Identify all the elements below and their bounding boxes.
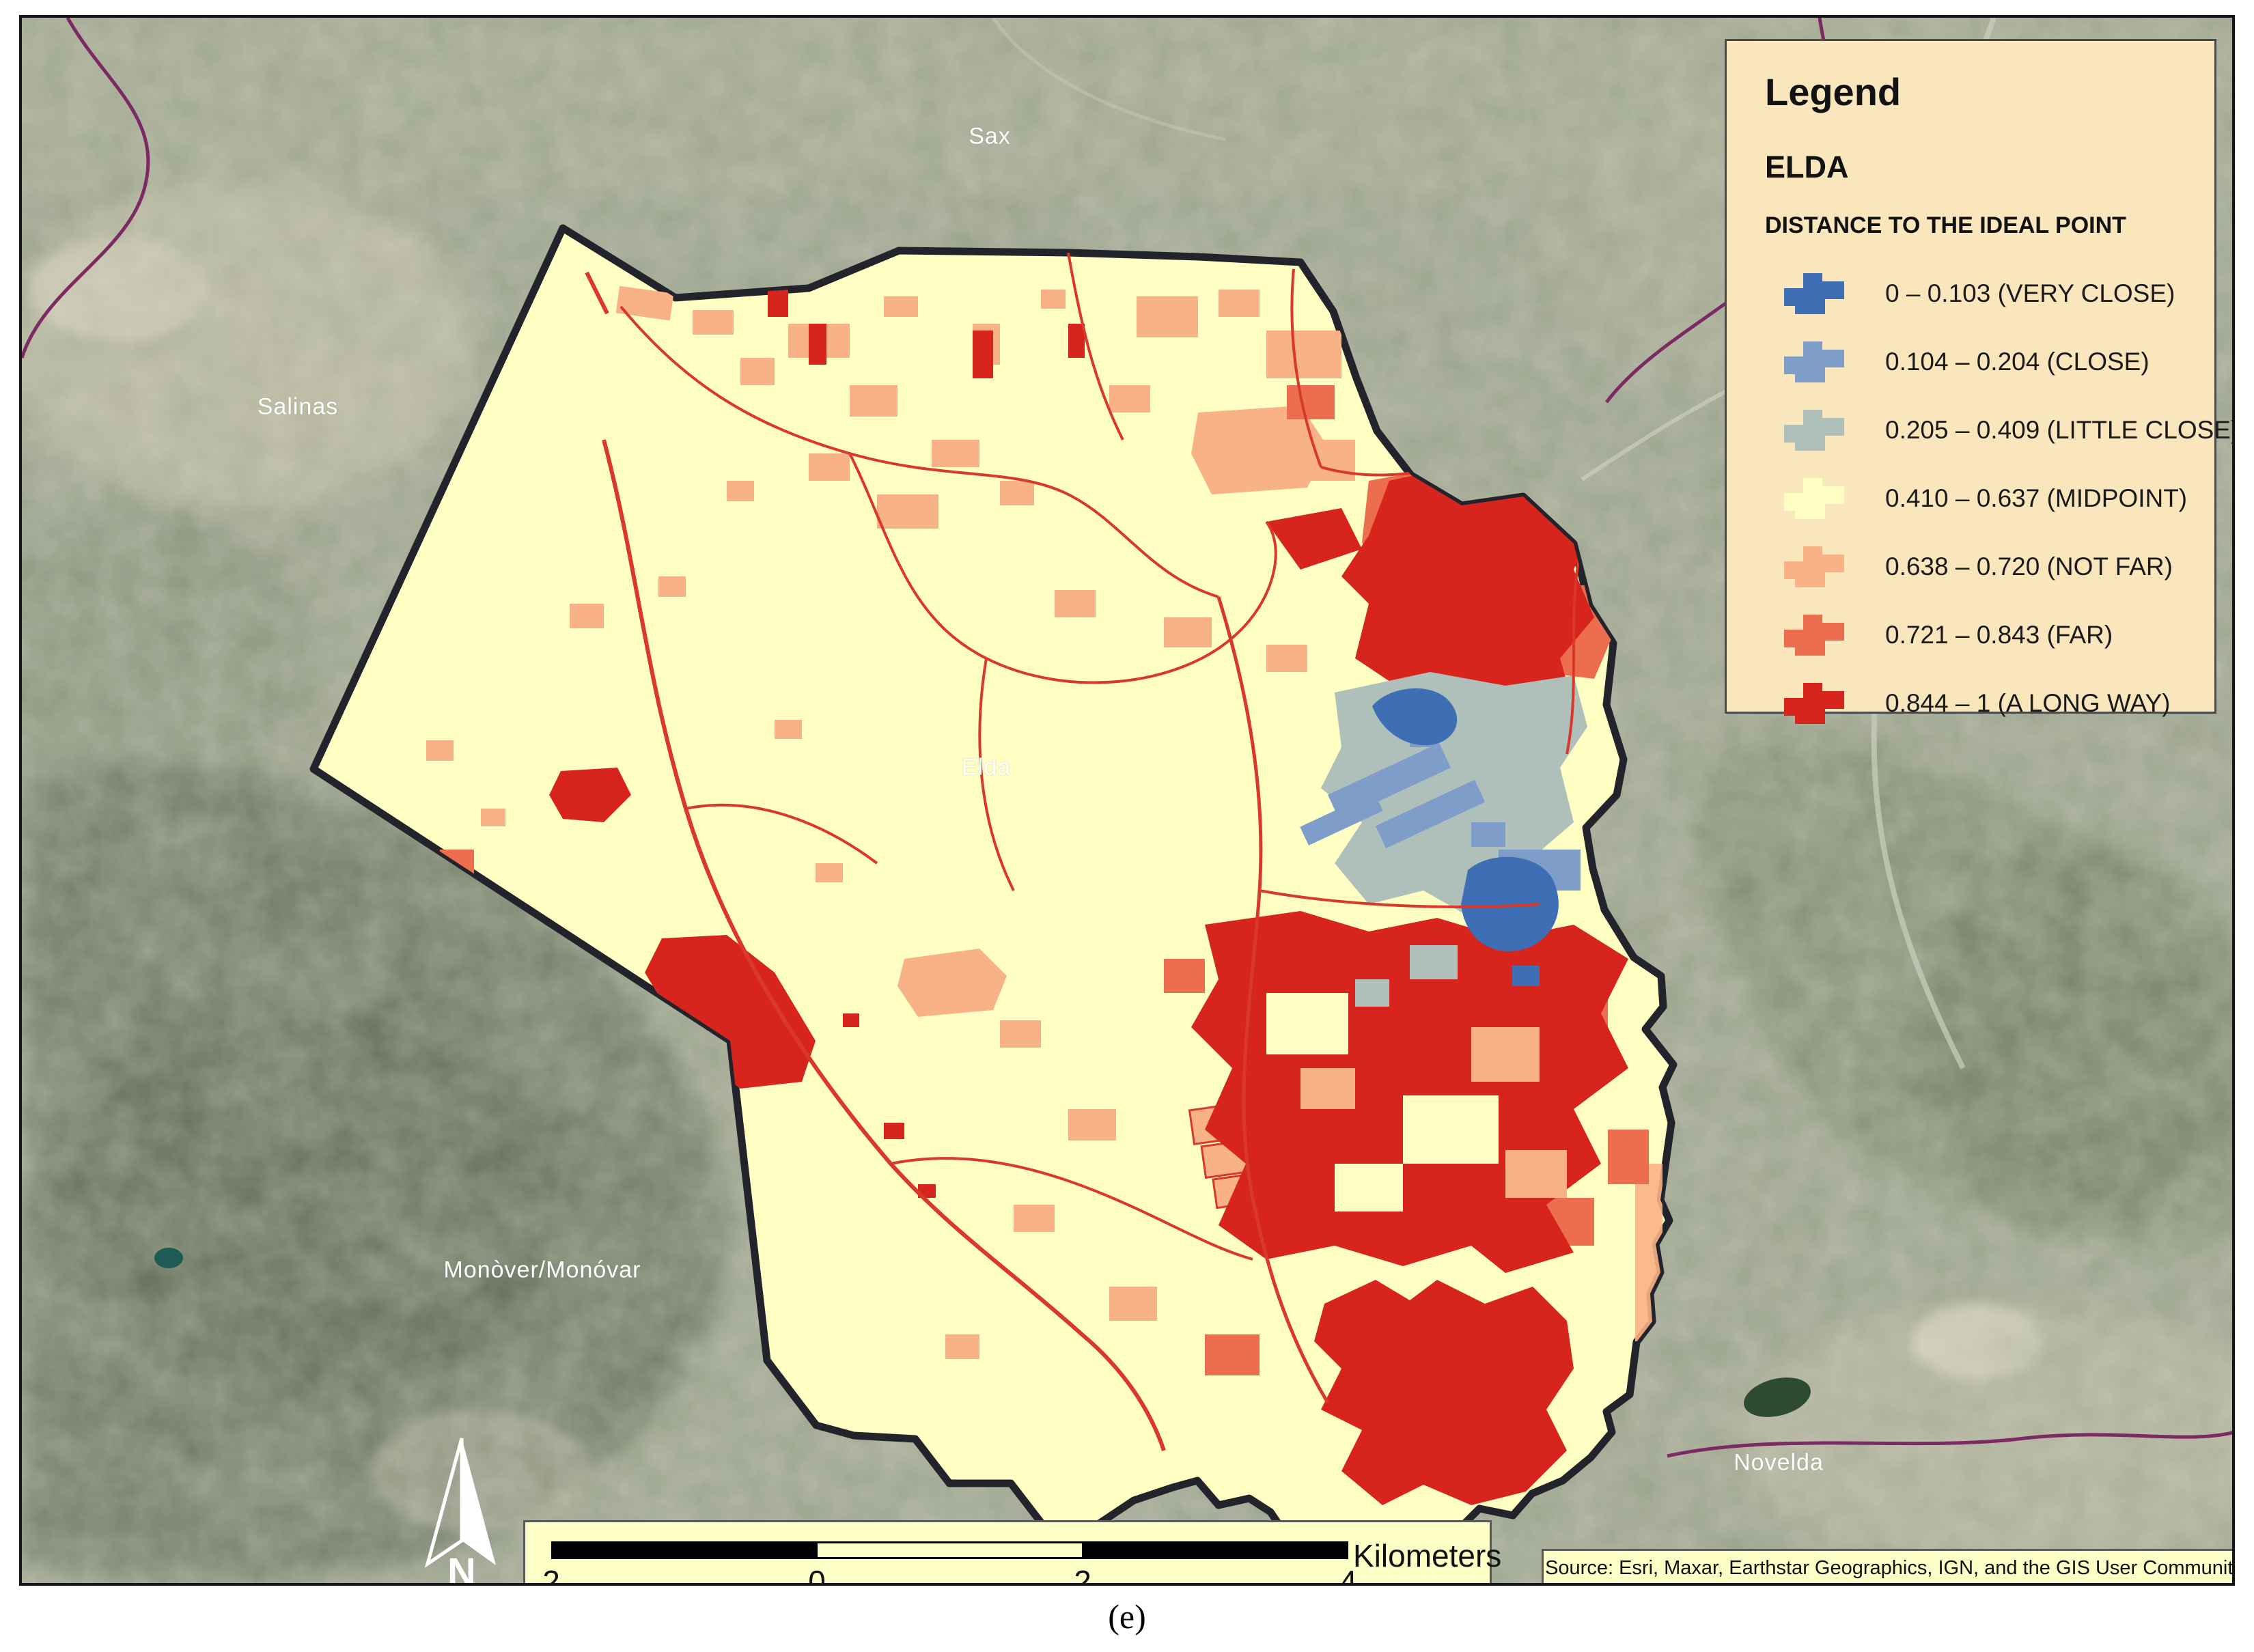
legend-panel: Legend ELDA DISTANCE TO THE IDEAL POINT … — [1725, 39, 2216, 714]
legend-swatch-icon — [1783, 545, 1846, 589]
legend-rows: 0 – 0.103 (VERY CLOSE)0.104 – 0.204 (CLO… — [1765, 260, 2194, 738]
legend-item: 0.410 – 0.637 (MIDPOINT) — [1765, 464, 2194, 533]
place-label: Novelda — [1734, 1450, 1824, 1476]
place-label: Elda — [962, 755, 1011, 781]
source-text: Source: Esri, Maxar, Earthstar Geographi… — [1545, 1557, 2235, 1580]
legend-item-label: 0.205 – 0.409 (LITTLE CLOSE) — [1885, 416, 2235, 445]
legend-item-label: 0.844 – 1 (A LONG WAY) — [1885, 689, 2170, 718]
legend-item-label: 0.410 – 0.637 (MIDPOINT) — [1885, 484, 2187, 513]
legend-swatch-icon — [1783, 340, 1846, 384]
place-label: Monòver/Monóvar — [443, 1257, 641, 1284]
legend-item-label: 0.721 – 0.843 (FAR) — [1885, 621, 2113, 649]
scale-unit-label: Kilometers — [1353, 1537, 1501, 1574]
scale-segment — [553, 1543, 818, 1557]
legend-swatch-icon — [1783, 272, 1846, 316]
scale-bar — [551, 1541, 1348, 1559]
scale-tick: 0 — [808, 1563, 826, 1586]
source-attribution: Source: Esri, Maxar, Earthstar Geographi… — [1542, 1549, 2235, 1586]
legend-item: 0 – 0.103 (VERY CLOSE) — [1765, 260, 2194, 328]
scale-segment — [818, 1543, 1082, 1557]
legend-item-label: 0.104 – 0.204 (CLOSE) — [1885, 348, 2149, 376]
legend-swatch-icon — [1783, 613, 1846, 657]
legend-item: 0.721 – 0.843 (FAR) — [1765, 601, 2194, 669]
legend-item-label: 0 – 0.103 (VERY CLOSE) — [1885, 279, 2175, 308]
place-label: Salinas — [258, 394, 339, 421]
legend-swatch-icon — [1783, 682, 1846, 725]
legend-item: 0.205 – 0.409 (LITTLE CLOSE) — [1765, 396, 2194, 464]
map-canvas: N SaxSalinasEldaMonòver/MonóvarNovelda L… — [19, 15, 2235, 1586]
legend-item: 0.104 – 0.204 (CLOSE) — [1765, 328, 2194, 396]
place-label: Sax — [969, 124, 1011, 150]
north-label: N — [447, 1550, 476, 1586]
legend-title: Legend — [1765, 70, 2194, 114]
legend-heading: DISTANCE TO THE IDEAL POINT — [1765, 212, 2194, 239]
legend-swatch-icon — [1783, 477, 1846, 520]
scale-segment — [1082, 1543, 1346, 1557]
scale-tick: 2 — [542, 1563, 560, 1586]
scale-tick: 2 — [1074, 1563, 1091, 1586]
figure-caption: (e) — [0, 1597, 2254, 1636]
legend-item: 0.638 – 0.720 (NOT FAR) — [1765, 533, 2194, 601]
scale-bar-panel: 2 0 2 4 Kilometers — [523, 1520, 1492, 1586]
legend-subtitle: ELDA — [1765, 150, 2194, 185]
legend-item: 0.844 – 1 (A LONG WAY) — [1765, 669, 2194, 738]
legend-item-label: 0.638 – 0.720 (NOT FAR) — [1885, 552, 2173, 581]
legend-swatch-icon — [1783, 408, 1846, 452]
